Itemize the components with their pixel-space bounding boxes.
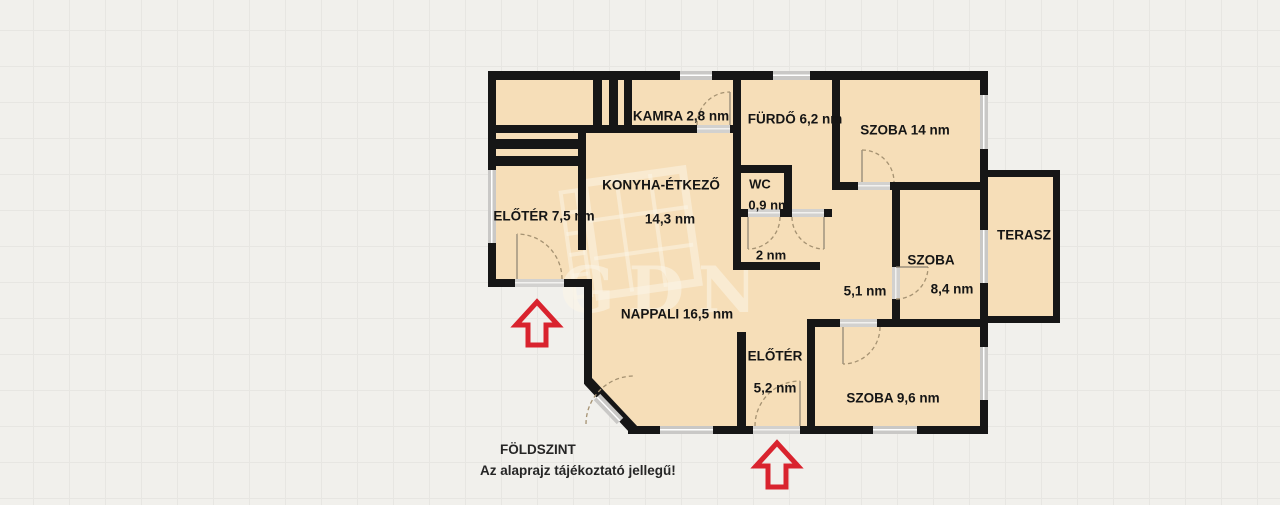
room-area-szoba84: 8,4 nm [931, 282, 974, 297]
floor-plan-drawing: GDN [0, 0, 1280, 505]
floor-title: FÖLDSZINT [500, 442, 576, 457]
room-label-nappali: NAPPALI 16,5 nm [621, 307, 733, 322]
room-label-terasz: TERASZ [997, 228, 1051, 243]
room-label-szoba84: SZOBA [907, 253, 954, 268]
room-label-kozlekedo-2: 2 nm [756, 248, 786, 263]
room-label-szoba14: SZOBA 14 nm [860, 123, 950, 138]
room-area-konyha: 14,3 nm [645, 212, 695, 227]
room-label-kozlekedo-51: 5,1 nm [844, 284, 887, 299]
room-label-kamra: KAMRA 2,8 nm [633, 109, 729, 124]
room-area-wc: 0,9 nm [748, 198, 789, 213]
entrance-arrow-up-icon [756, 443, 798, 487]
room-area-eloter-also: 5,2 nm [754, 381, 797, 396]
entrance-arrow-up-icon [516, 302, 558, 345]
disclaimer-text: Az alaprajz tájékoztató jellegű! [480, 463, 676, 478]
room-label-wc: WC [749, 177, 771, 192]
room-label-eloter-also: ELŐTÉR [748, 349, 803, 364]
room-label-konyha: KONYHA-ÉTKEZŐ [602, 178, 720, 193]
floor-plan-canvas: GDN [0, 0, 1280, 505]
room-label-eloter-felso: ELŐTÉR 7,5 nm [493, 209, 594, 224]
room-label-szoba96: SZOBA 9,6 nm [846, 391, 939, 406]
terrace-footprint [983, 170, 1060, 323]
room-label-furdo: FÜRDŐ 6,2 nm [748, 112, 843, 127]
